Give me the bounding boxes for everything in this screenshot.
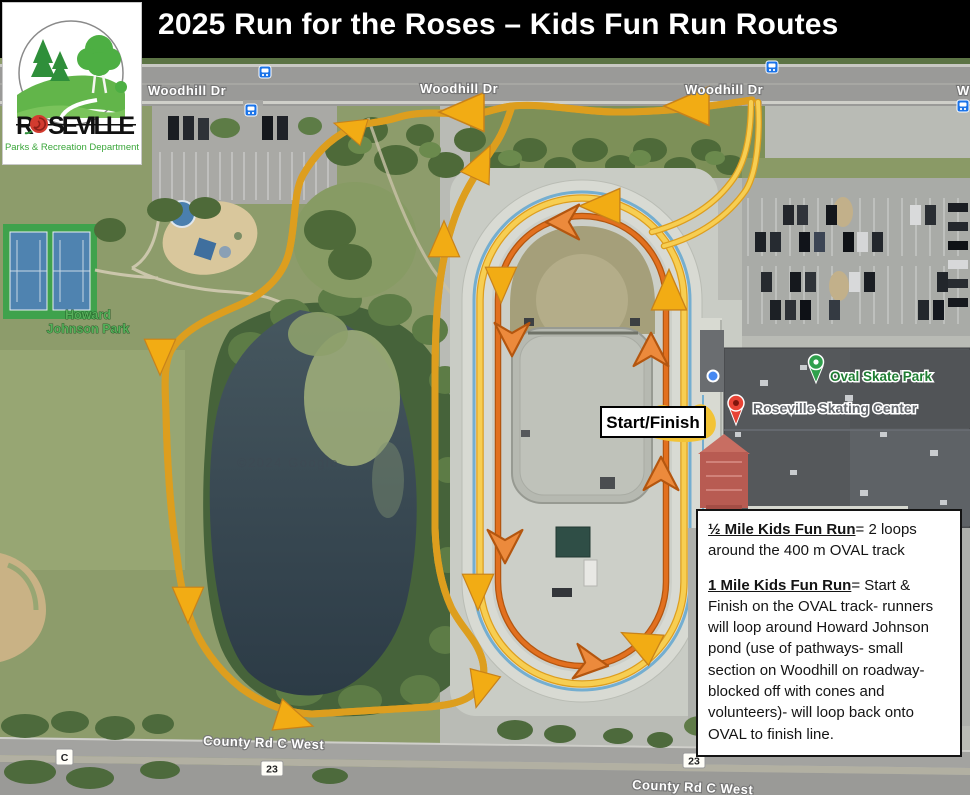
park-label-line2: Johnson Park	[47, 322, 130, 336]
street-label-woodhill-3: Woodhill Dr	[685, 82, 763, 97]
title-bar: 2025 Run for the Roses – Kids Fun Run Ro…	[0, 0, 970, 58]
bus-stop-icon	[259, 66, 271, 78]
bus-stop-icon	[766, 61, 778, 73]
poi-label-skating-center: Roseville Skating Center	[753, 400, 918, 416]
park-label-line1: Howard	[65, 308, 111, 322]
street-label-woodhill-2: Woodhill Dr	[420, 81, 498, 96]
page-title: 2025 Run for the Roses – Kids Fun Run Ro…	[158, 8, 839, 42]
blue-location-dot-icon	[708, 371, 719, 382]
poi-label-skate-park: Oval Skate Park	[830, 369, 933, 384]
roseville-parks-logo: R SEVILLE Parks & Recreation Department	[2, 2, 142, 165]
logo-tagline: Parks & Recreation Department	[5, 142, 139, 153]
bus-stop-icon	[245, 104, 257, 116]
half-mile-description: ½ Mile Kids Fun Run= 2 loops around the …	[708, 519, 950, 562]
badge-county-c: C	[61, 752, 69, 764]
flyer-page: ©2024 Google	[0, 0, 970, 795]
one-mile-route-name: 1 Mile Kids Fun Run	[708, 577, 851, 594]
one-mile-route-detail: = Start & Finish on the OVAL track- runn…	[708, 577, 933, 743]
start-finish-label: Start/Finish	[606, 413, 700, 432]
pond: ©2024 Google	[210, 310, 417, 695]
start-finish-marker: Start/Finish	[601, 404, 716, 442]
route-info-box: ½ Mile Kids Fun Run= 2 loops around the …	[696, 509, 962, 757]
bus-stop-icon	[957, 100, 969, 112]
logo-word-rest: SEVILLE	[48, 112, 134, 140]
one-mile-description: 1 Mile Kids Fun Run= Start & Finish on t…	[708, 575, 950, 745]
badge-23-left: 23	[266, 764, 278, 776]
street-label-woodhill-1: Woodhill Dr	[148, 83, 226, 98]
west-parking-lot	[152, 106, 337, 204]
street-label-woodhill-partial: W	[957, 83, 970, 98]
map-watermark: ©2024 Google	[237, 455, 339, 470]
badge-23-right: 23	[688, 756, 700, 768]
tennis-courts	[3, 224, 97, 319]
half-mile-route-name: ½ Mile Kids Fun Run	[708, 521, 856, 538]
